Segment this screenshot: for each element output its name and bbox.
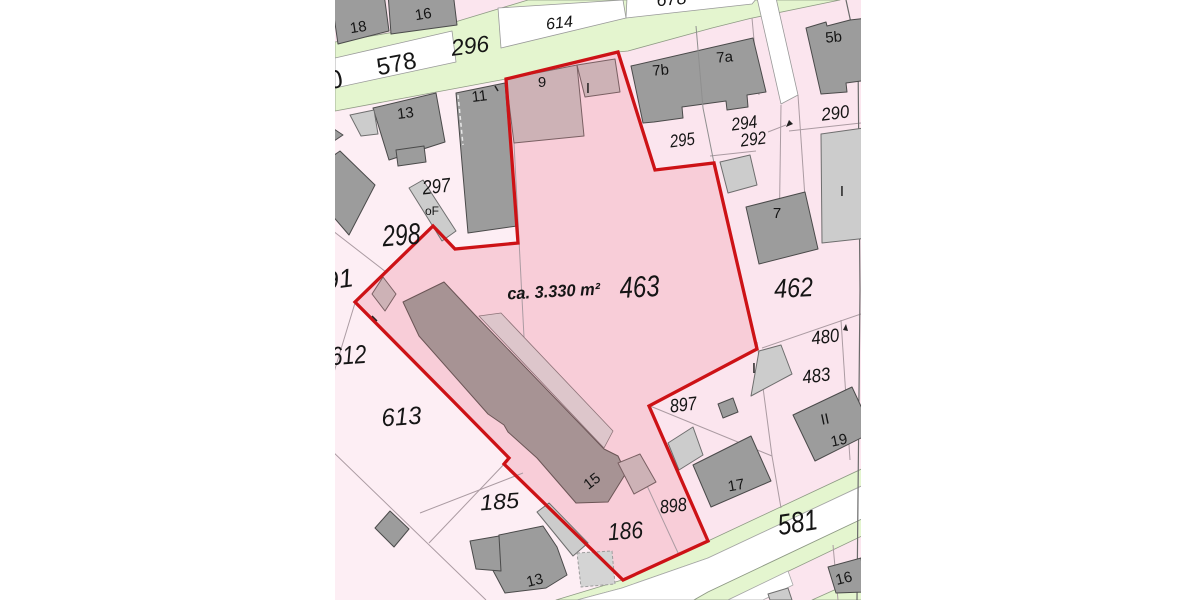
svg-text:581: 581 <box>775 504 820 542</box>
svg-text:463: 463 <box>619 270 661 305</box>
svg-text:298: 298 <box>380 218 421 254</box>
svg-text:897: 897 <box>669 393 700 417</box>
svg-text:483: 483 <box>801 364 832 388</box>
svg-text:17: 17 <box>727 476 746 496</box>
svg-text:612: 612 <box>329 339 367 371</box>
svg-text:613: 613 <box>381 402 423 433</box>
svg-text:7b: 7b <box>652 61 670 79</box>
svg-text:18: 18 <box>349 18 368 37</box>
svg-text:480: 480 <box>810 325 841 349</box>
svg-text:296: 296 <box>449 30 491 61</box>
svg-text:9: 9 <box>538 74 546 91</box>
svg-text:292: 292 <box>738 128 767 151</box>
svg-text:614: 614 <box>545 13 574 33</box>
svg-text:898: 898 <box>659 494 689 518</box>
svg-text:19: 19 <box>829 431 849 451</box>
svg-text:5b: 5b <box>825 28 843 46</box>
svg-text:7a: 7a <box>716 48 735 66</box>
svg-text:16: 16 <box>414 5 433 24</box>
svg-text:I: I <box>752 360 756 377</box>
svg-text:295: 295 <box>668 128 697 151</box>
svg-text:7: 7 <box>773 205 781 222</box>
svg-text:290: 290 <box>819 101 850 124</box>
svg-text:11: 11 <box>471 87 489 106</box>
svg-text:I: I <box>586 80 590 97</box>
svg-text:297: 297 <box>420 175 452 200</box>
svg-text:462: 462 <box>773 272 814 304</box>
svg-text:186: 186 <box>607 517 644 546</box>
svg-text:I: I <box>840 183 844 200</box>
svg-text:oF: oF <box>425 204 439 218</box>
svg-text:13: 13 <box>396 104 415 123</box>
svg-text:185: 185 <box>479 488 520 516</box>
